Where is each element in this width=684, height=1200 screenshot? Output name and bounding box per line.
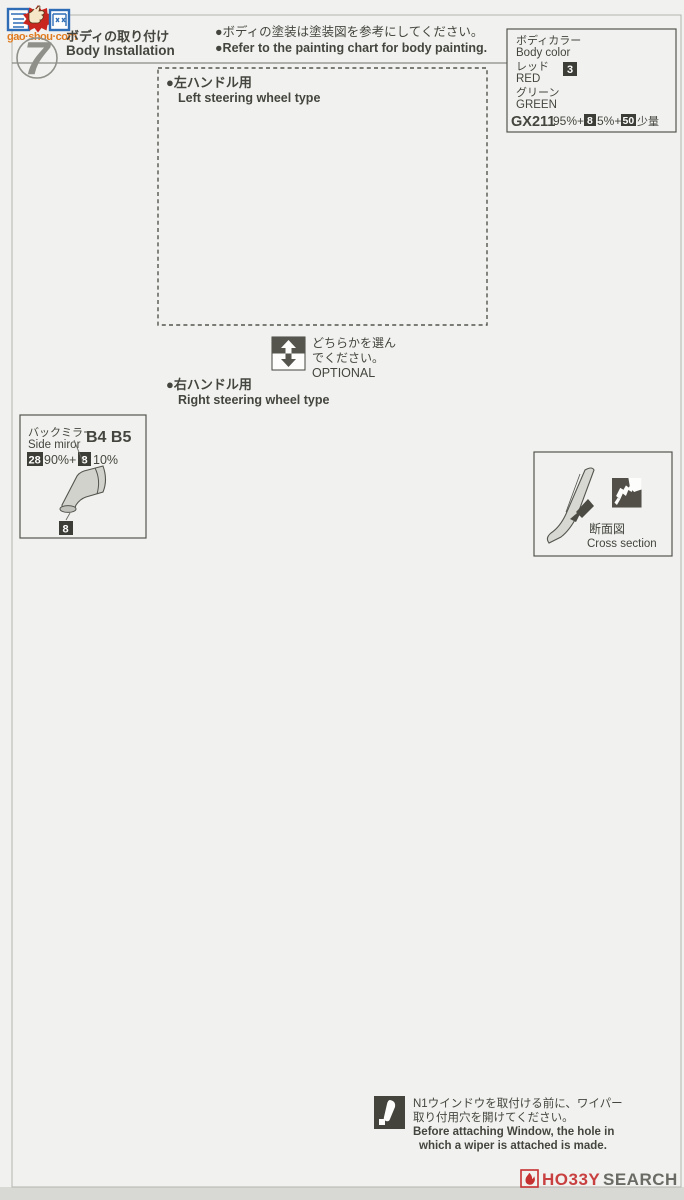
svg-text:95%+: 95%+ xyxy=(553,114,584,128)
svg-text:RED: RED xyxy=(516,73,540,85)
svg-text:どちらかを選ん: どちらかを選ん xyxy=(312,336,396,350)
svg-text:GREEN: GREEN xyxy=(516,99,557,111)
svg-text:B4 B5: B4 B5 xyxy=(86,429,131,446)
svg-text:28: 28 xyxy=(29,455,41,467)
svg-text:レッド: レッド xyxy=(516,61,549,73)
svg-text:which a wiper is attached is m: which a wiper is attached is made. xyxy=(418,1140,607,1152)
svg-text:バックミラー: バックミラー xyxy=(28,426,94,439)
svg-text:ボディカラー: ボディカラー xyxy=(516,33,581,47)
svg-text:断面図: 断面図 xyxy=(589,521,625,536)
svg-text:Body color: Body color xyxy=(516,47,571,59)
svg-text:GX211: GX211 xyxy=(511,114,555,130)
svg-text:●左ハンドル用: ●左ハンドル用 xyxy=(166,75,252,90)
svg-text:●Refer to the painting chart f: ●Refer to the painting chart for body pa… xyxy=(215,41,487,55)
svg-text:少量: 少量 xyxy=(637,115,659,128)
svg-text:Cross section: Cross section xyxy=(587,538,657,550)
svg-text:●ボディの塗装は塗装図を参考にしてください。: ●ボディの塗装は塗装図を参考にしてください。 xyxy=(215,24,483,39)
svg-text:HO33Y: HO33Y xyxy=(542,1170,600,1189)
svg-text:Before attaching Window, th: Before attaching Window, the hole in xyxy=(413,1126,614,1138)
svg-text:8: 8 xyxy=(587,115,593,127)
svg-text:Left steering wheel type: Left steering wheel type xyxy=(178,91,320,105)
svg-text:8: 8 xyxy=(63,524,69,536)
svg-text:●右ハンドル用: ●右ハンドル用 xyxy=(166,377,252,392)
svg-text:10%: 10% xyxy=(93,453,118,467)
svg-text:OPTIONAL: OPTIONAL xyxy=(312,366,375,380)
svg-text:N1ウインドウを取付ける前に、ワイパー: N1ウインドウを取付ける前に、ワイパー xyxy=(413,1096,623,1110)
svg-text:Right steering wheel type: Right steering wheel type xyxy=(178,393,329,407)
svg-text:50: 50 xyxy=(623,115,635,127)
svg-text:でください。: でください。 xyxy=(312,351,384,365)
svg-text:取り付用穴を開けてください。: 取り付用穴を開けてください。 xyxy=(413,1110,574,1124)
svg-text:5%+: 5%+ xyxy=(597,114,621,128)
svg-text:7: 7 xyxy=(24,32,52,84)
svg-text:ボディの取り付け: ボディの取り付け xyxy=(66,29,169,44)
svg-text:Side miror: Side miror xyxy=(28,439,81,451)
svg-text:グリーン: グリーン xyxy=(516,85,559,99)
svg-text:3: 3 xyxy=(567,64,573,76)
svg-text:Body Installation: Body Installation xyxy=(66,43,175,58)
svg-text:90%+: 90%+ xyxy=(44,453,76,467)
svg-text:SEARCH: SEARCH xyxy=(603,1170,678,1189)
